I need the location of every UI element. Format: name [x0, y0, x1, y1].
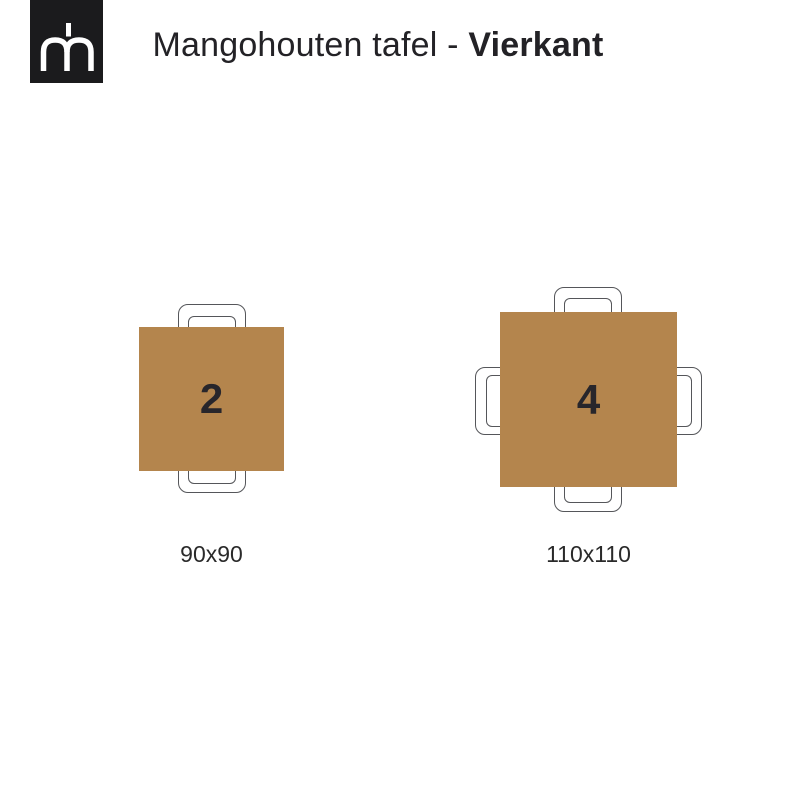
title-regular: Mangohouten tafel - [152, 26, 468, 64]
brand-logo: mh [30, 0, 103, 83]
tabletop-2-seats: 2 [139, 327, 284, 471]
infographic-canvas: mh Mangohouten tafel - Vierkant 2 90x90 … [0, 0, 800, 800]
size-label: 110x110 [500, 541, 677, 568]
seat-count: 4 [577, 379, 600, 421]
page-title: Mangohouten tafel - Vierkant [152, 26, 603, 65]
seat-count: 2 [200, 378, 223, 420]
mh-monogram-icon [30, 0, 103, 83]
tabletop-4-seats: 4 [500, 312, 677, 487]
size-label: 90x90 [139, 541, 284, 568]
title-bold: Vierkant [468, 26, 603, 64]
